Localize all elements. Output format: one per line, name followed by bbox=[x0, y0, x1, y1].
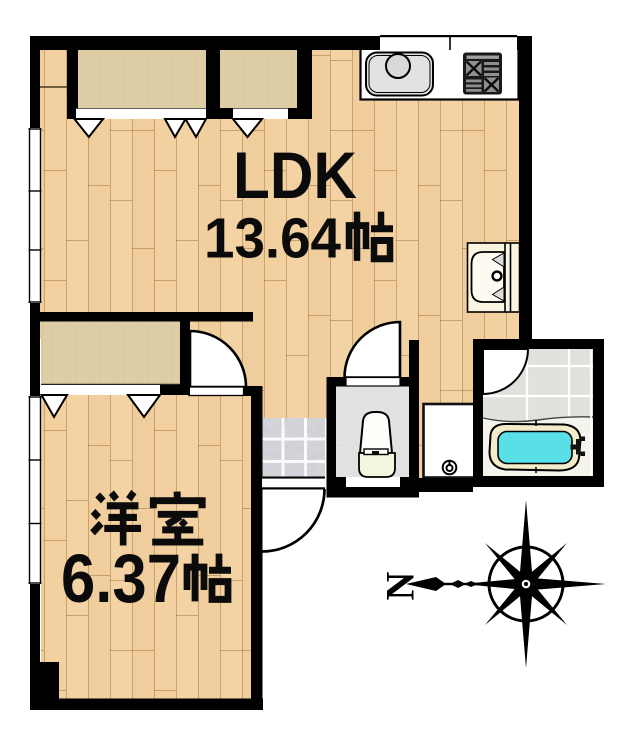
svg-text:6.37: 6.37 bbox=[61, 540, 181, 617]
svg-text:N: N bbox=[378, 571, 423, 600]
svg-text:13.64: 13.64 bbox=[204, 207, 342, 270]
svg-text:LDK: LDK bbox=[233, 138, 357, 212]
